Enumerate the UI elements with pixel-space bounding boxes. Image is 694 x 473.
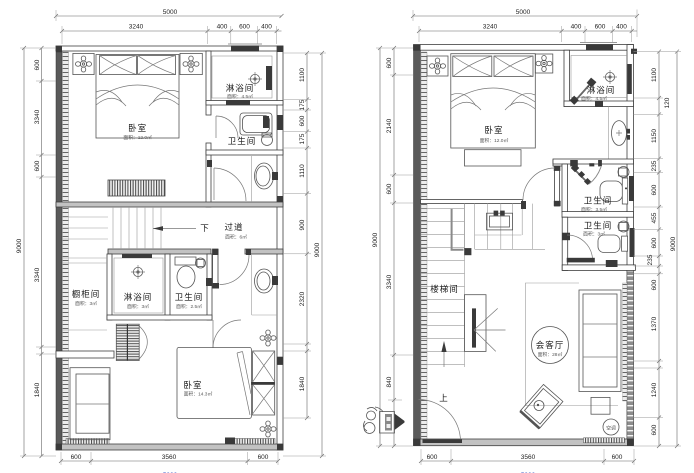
svg-text:9000: 9000 — [314, 242, 321, 257]
svg-text:卫生间: 卫生间 — [584, 221, 613, 231]
svg-text:卧室: 卧室 — [128, 123, 147, 133]
svg-text:400: 400 — [571, 24, 582, 31]
svg-text:235: 235 — [651, 160, 658, 171]
svg-text:600: 600 — [386, 57, 393, 68]
svg-text:面积：12.0㎡: 面积：12.0㎡ — [480, 137, 509, 144]
svg-text:235: 235 — [647, 254, 654, 265]
svg-text:9000: 9000 — [670, 236, 677, 251]
svg-text:卫生间: 卫生间 — [228, 136, 257, 146]
svg-text:5000: 5000 — [163, 9, 178, 16]
svg-text:2140: 2140 — [386, 118, 393, 133]
svg-text:900: 900 — [299, 219, 306, 230]
svg-text:3240: 3240 — [129, 24, 144, 31]
svg-text:175: 175 — [299, 99, 306, 110]
svg-text:1370: 1370 — [651, 316, 658, 331]
svg-text:400: 400 — [616, 24, 627, 31]
svg-text:会客厅: 会客厅 — [536, 340, 565, 350]
svg-text:1100: 1100 — [299, 68, 306, 82]
svg-text:600: 600 — [651, 184, 658, 195]
svg-text:9000: 9000 — [372, 232, 379, 247]
svg-text:淋浴间: 淋浴间 — [587, 85, 616, 95]
svg-text:3560: 3560 — [162, 454, 177, 461]
svg-text:3340: 3340 — [386, 274, 393, 289]
svg-text:卧室: 卧室 — [484, 125, 503, 135]
svg-text:面积：4.5㎡: 面积：4.5㎡ — [581, 95, 607, 102]
svg-text:1110: 1110 — [299, 164, 306, 178]
svg-text:3340: 3340 — [34, 267, 41, 282]
svg-text:600: 600 — [258, 454, 269, 461]
svg-text:1840: 1840 — [34, 382, 41, 397]
svg-text:600: 600 — [651, 279, 658, 290]
svg-text:3560: 3560 — [521, 454, 536, 461]
svg-text:600: 600 — [612, 454, 623, 461]
svg-text:3240: 3240 — [483, 24, 498, 31]
svg-text:840: 840 — [386, 376, 393, 387]
svg-text:1150: 1150 — [651, 129, 658, 143]
svg-text:600: 600 — [651, 237, 658, 248]
svg-text:600: 600 — [34, 160, 41, 171]
svg-text:橱柜间: 橱柜间 — [72, 289, 101, 299]
svg-text:2320: 2320 — [299, 291, 306, 306]
svg-text:600: 600 — [651, 424, 658, 435]
svg-text:面积：4.5㎡: 面积：4.5㎡ — [227, 93, 253, 100]
svg-text:600: 600 — [239, 24, 250, 31]
svg-text:600: 600 — [386, 183, 393, 194]
svg-text:9000: 9000 — [16, 238, 23, 253]
svg-text:面积：12.0㎡: 面积：12.0㎡ — [123, 134, 152, 141]
svg-text:1240: 1240 — [651, 382, 658, 397]
svg-text:面积：14.3㎡: 面积：14.3㎡ — [184, 391, 213, 398]
svg-text:上: 上 — [439, 393, 449, 403]
svg-text:600: 600 — [595, 24, 606, 31]
svg-text:600: 600 — [427, 454, 438, 461]
svg-text:卧室: 卧室 — [183, 380, 202, 390]
svg-text:面积：3㎡: 面积：3㎡ — [75, 300, 97, 307]
svg-text:面积：6㎡: 面积：6㎡ — [225, 234, 247, 241]
svg-text:过道: 过道 — [224, 222, 243, 232]
svg-text:400: 400 — [261, 24, 272, 31]
svg-text:600: 600 — [34, 59, 41, 70]
svg-text:淋浴间: 淋浴间 — [124, 292, 153, 302]
svg-text:400: 400 — [217, 24, 228, 31]
svg-text:1100: 1100 — [651, 68, 658, 82]
svg-text:下: 下 — [200, 223, 210, 233]
svg-text:面积：2.5㎡: 面积：2.5㎡ — [176, 303, 202, 310]
svg-text:面积：28㎡: 面积：28㎡ — [538, 351, 563, 358]
svg-text:600: 600 — [71, 454, 82, 461]
svg-text:600: 600 — [299, 115, 306, 126]
svg-text:5000: 5000 — [516, 9, 531, 16]
svg-text:淋浴间: 淋浴间 — [226, 83, 255, 93]
svg-text:120: 120 — [664, 97, 671, 108]
svg-text:175: 175 — [299, 133, 306, 144]
svg-text:空调: 空调 — [606, 425, 616, 432]
svg-text:3340: 3340 — [34, 109, 41, 124]
svg-text:455: 455 — [651, 212, 658, 223]
svg-text:楼梯间: 楼梯间 — [430, 284, 459, 294]
svg-text:卫生间: 卫生间 — [584, 196, 613, 206]
svg-text:1840: 1840 — [299, 376, 306, 391]
svg-text:卫生间: 卫生间 — [175, 292, 204, 302]
svg-text:面积：3㎡: 面积：3㎡ — [127, 303, 149, 310]
